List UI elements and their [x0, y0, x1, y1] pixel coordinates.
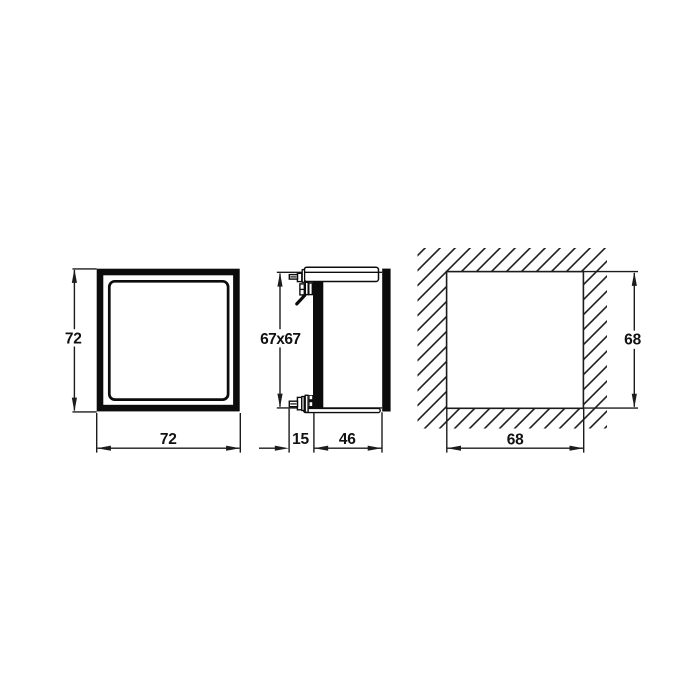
svg-text:68: 68: [624, 332, 641, 349]
svg-text:72: 72: [65, 330, 82, 347]
svg-text:67x67: 67x67: [260, 331, 300, 348]
svg-text:68: 68: [507, 432, 524, 449]
svg-text:72: 72: [160, 431, 177, 448]
svg-text:46: 46: [339, 431, 356, 448]
svg-text:15: 15: [292, 431, 309, 448]
